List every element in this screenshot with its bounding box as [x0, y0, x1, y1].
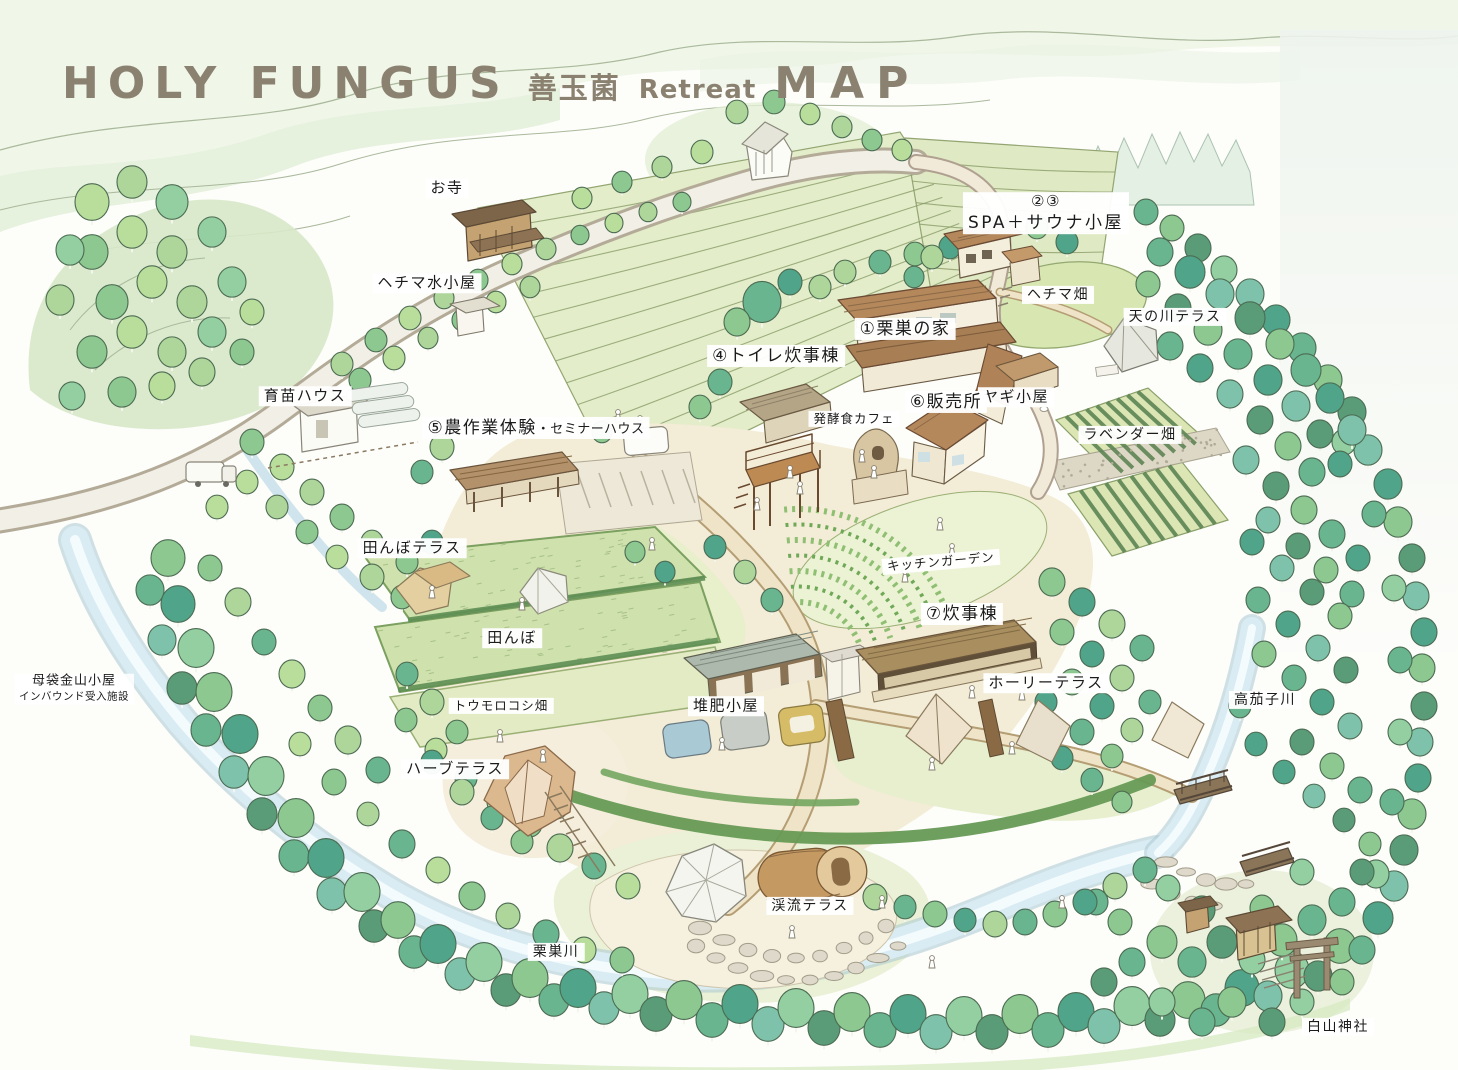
label-spa-sauna: ②③ SPA＋サウナ小屋: [963, 192, 1129, 234]
label-hechima-field: ヘチマ畑: [1022, 286, 1094, 304]
label-cook-hut: ⑦炊事棟: [921, 603, 1003, 625]
label-holy-terrace: ホーリーテラス: [983, 673, 1108, 693]
label-shop: ⑥販売所: [905, 391, 987, 413]
label-motai: 母袋金山小屋 インバウンド受入施設: [14, 674, 134, 705]
label-toilet: ④トイレ炊事棟: [707, 345, 845, 367]
truck: [186, 462, 236, 487]
label-lavender-field: ラベンダー畑: [1079, 426, 1182, 444]
brand-map-word: MAP: [774, 58, 920, 109]
brand-jp: 善玉菌: [528, 65, 621, 107]
label-farm-sub: ・セミナーハウス: [537, 422, 645, 437]
label-spa-text: SPA＋サウナ小屋: [968, 212, 1124, 234]
label-hechima-hut: ヘチマ水小屋: [372, 273, 481, 293]
label-temple: お寺: [425, 178, 468, 198]
label-farm-experience: ⑤農作業体験・セミナーハウス: [423, 417, 650, 439]
label-tanbo: 田んぼ: [482, 628, 542, 648]
label-kurisu-house: ①栗巣の家: [855, 318, 956, 340]
hechima-water-hut: [450, 297, 500, 336]
label-spa-numbers: ②③: [968, 192, 1124, 212]
label-goat-hut: ヤギ小屋: [978, 387, 1054, 407]
label-amanogawa-terrace: 天の川テラス: [1124, 308, 1227, 326]
label-kurisu-river: 栗巣川: [528, 943, 585, 961]
label-takanasu-river: 高茄子川: [1229, 691, 1301, 709]
parking-lot: [556, 452, 702, 534]
label-motai-line2: インバウンド受入施設: [19, 691, 129, 705]
map-illustration: [0, 0, 1458, 1070]
label-compost-hut: 堆肥小屋: [688, 696, 764, 716]
label-corn-field: トウモロコシ畑: [449, 698, 554, 714]
brand-name: HOLY FUNGUS: [62, 58, 510, 109]
label-keiryu-terrace: 渓流テラス: [766, 897, 853, 915]
label-tanbo-terrace: 田んぼテラス: [358, 538, 467, 558]
map-title: HOLY FUNGUS 善玉菌 Retreat MAP: [62, 58, 920, 109]
label-nursery: 育苗ハウス: [259, 386, 352, 406]
label-ferment-cafe: 発酵食カフェ: [808, 411, 899, 427]
label-farm-main: ⑤農作業体験: [428, 418, 537, 438]
brand-retreat: Retreat: [639, 75, 757, 105]
label-hakusan-shrine: 白山神社: [1302, 1018, 1374, 1036]
label-motai-line1: 母袋金山小屋: [19, 674, 129, 691]
label-herb-terrace: ハーブテラス: [401, 759, 509, 779]
retreat-map: HOLY FUNGUS 善玉菌 Retreat MAP お寺 ヘチマ水小屋 育苗…: [0, 0, 1458, 1070]
